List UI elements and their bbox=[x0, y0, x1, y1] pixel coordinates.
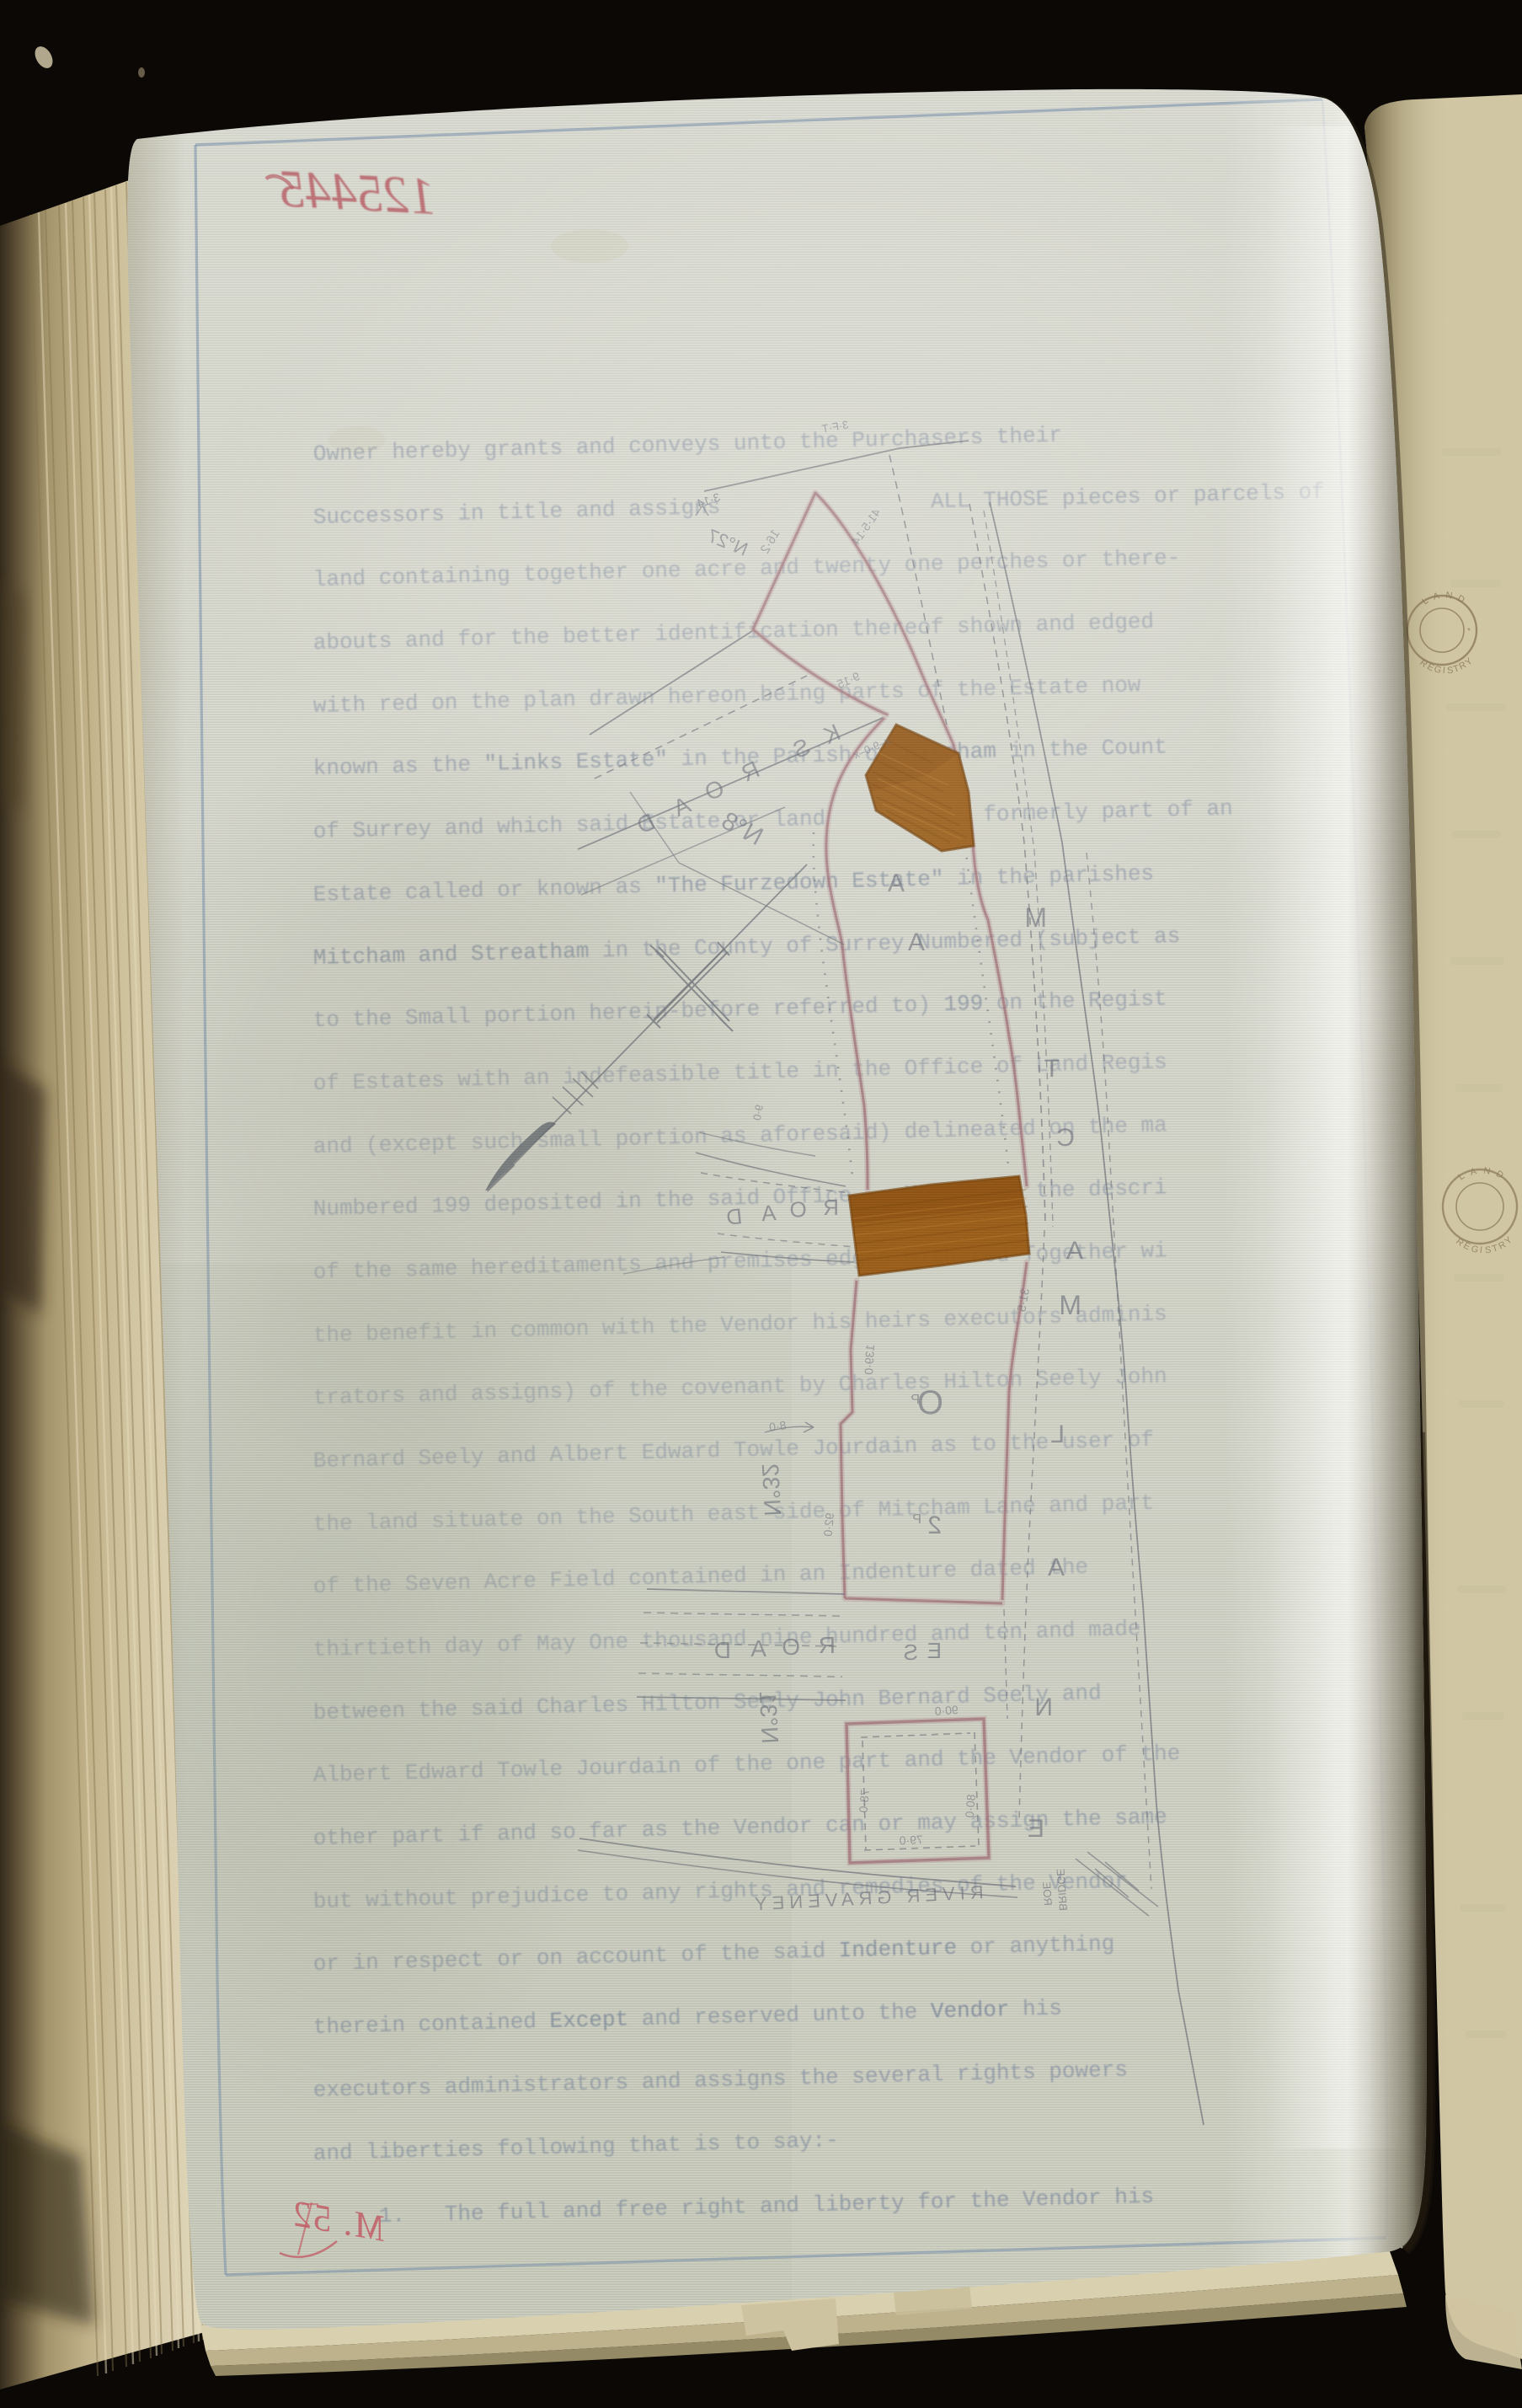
svg-text:*: * bbox=[1467, 627, 1471, 636]
svg-text:S: S bbox=[1484, 1245, 1492, 1256]
svg-text:N: N bbox=[1483, 1166, 1492, 1177]
svg-text:N: N bbox=[1445, 591, 1454, 602]
